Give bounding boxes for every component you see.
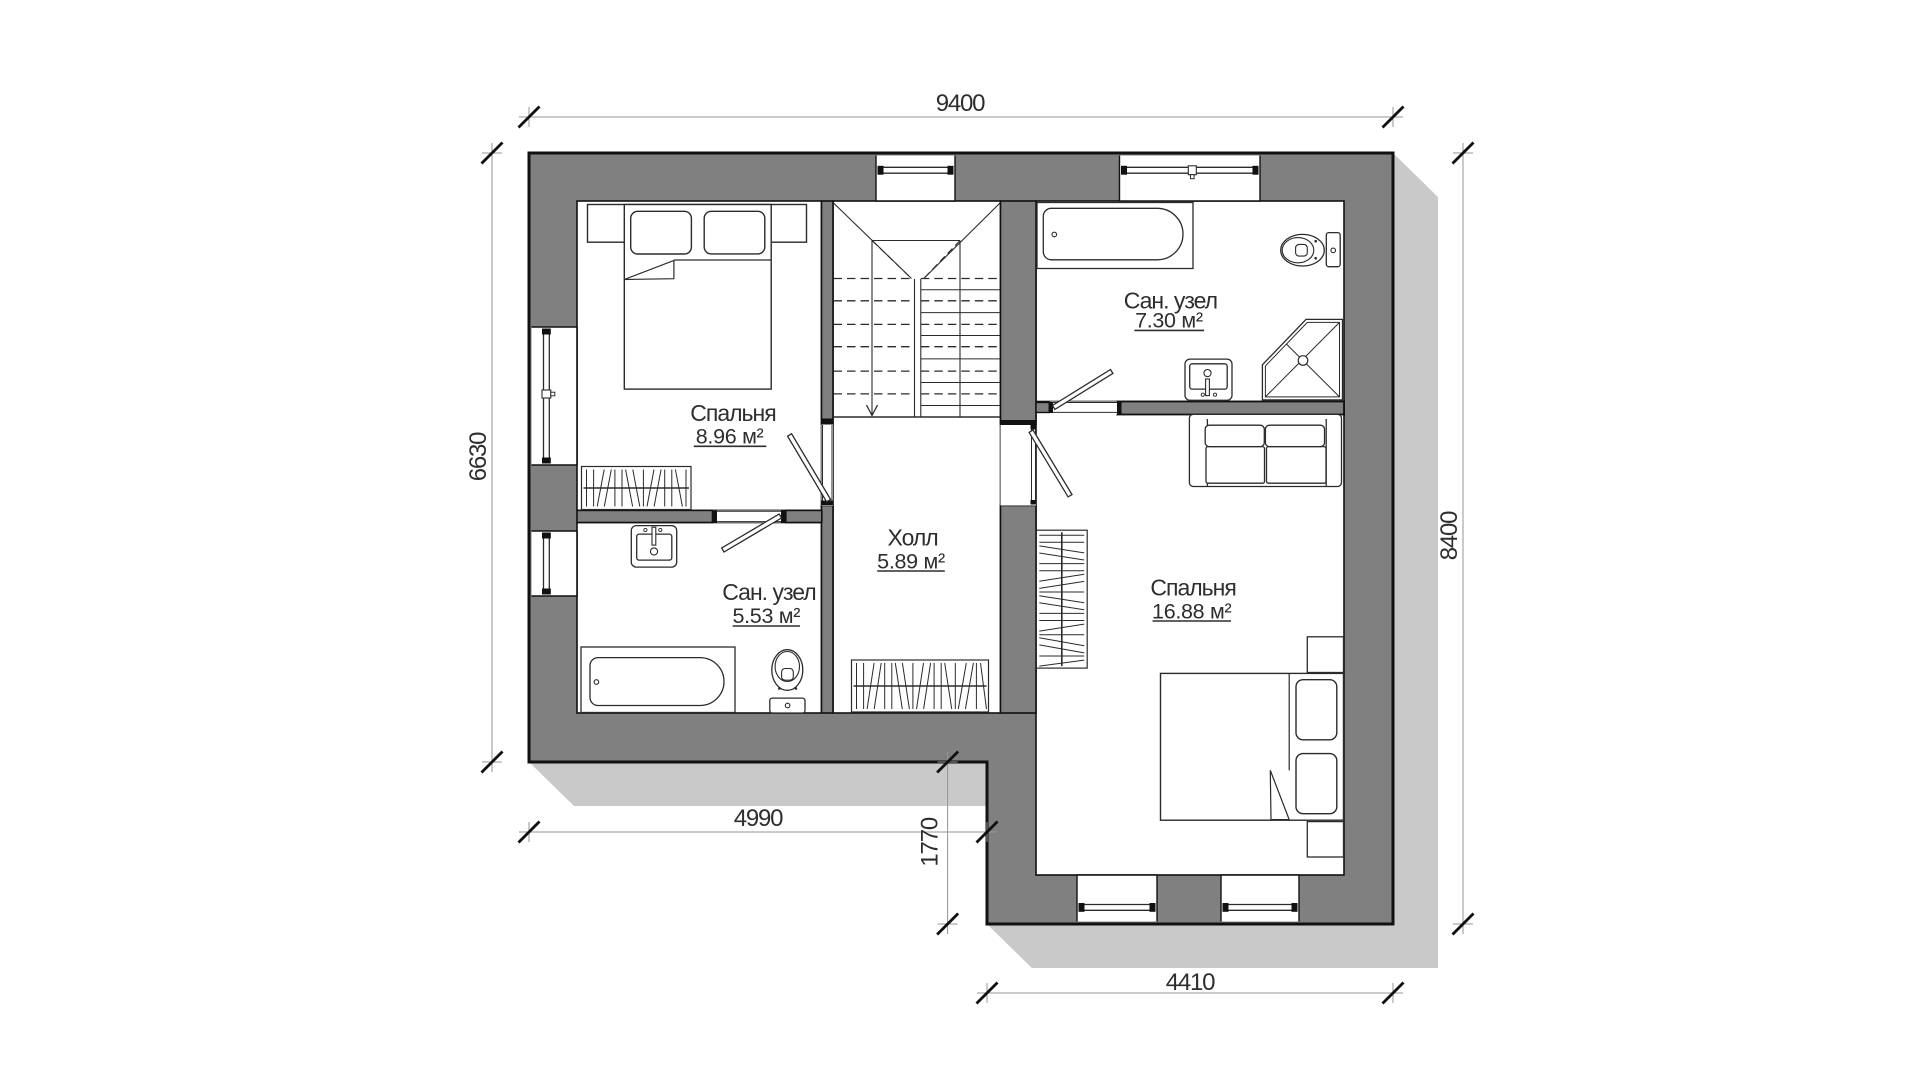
svg-text:5.53 м²: 5.53 м² — [732, 604, 800, 628]
svg-text:9400: 9400 — [936, 90, 985, 117]
svg-text:4990: 4990 — [734, 805, 783, 832]
svg-text:16.88 м²: 16.88 м² — [1152, 600, 1231, 624]
svg-text:Сан. узел: Сан. узел — [722, 579, 815, 605]
svg-text:5.89 м²: 5.89 м² — [877, 550, 945, 574]
svg-text:7.30 м²: 7.30 м² — [1135, 309, 1203, 333]
svg-text:4410: 4410 — [1166, 969, 1215, 996]
svg-text:1770: 1770 — [917, 817, 944, 866]
svg-text:8.96 м²: 8.96 м² — [696, 425, 764, 449]
svg-text:Спальня: Спальня — [690, 400, 775, 426]
svg-text:Спальня: Спальня — [1150, 575, 1235, 601]
svg-text:8400: 8400 — [1436, 511, 1463, 560]
svg-text:Холл: Холл — [887, 525, 937, 551]
svg-text:6630: 6630 — [465, 432, 492, 481]
